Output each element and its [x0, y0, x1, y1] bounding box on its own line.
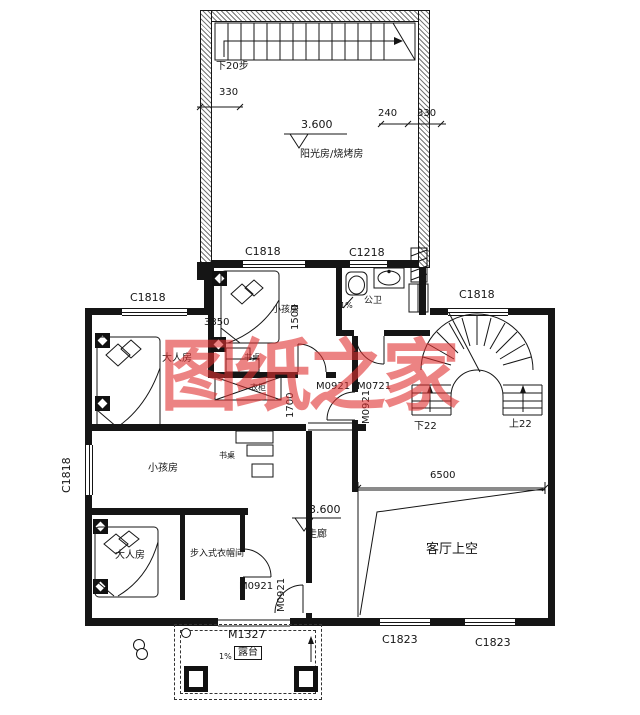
door-label-m1327: M1327	[228, 629, 266, 640]
door-label-m0921: M0921	[316, 382, 350, 392]
level-markers	[284, 134, 347, 531]
room-terrace: 露台	[234, 646, 262, 660]
window-label-c1218: C1218	[349, 247, 385, 258]
dim-3850: 3850	[204, 318, 229, 328]
window-label-c1818: C1818	[130, 292, 166, 303]
room-bath: 公卫	[364, 297, 382, 306]
dim-1500: 1500	[291, 305, 301, 330]
dim-1700: 1700	[286, 393, 296, 418]
toilet-icon	[346, 272, 367, 295]
plan-linework	[0, 0, 640, 715]
window-label-c1823: C1823	[382, 634, 418, 645]
roof-stair-note: 下20步	[216, 62, 249, 72]
stair-up22: 上22	[509, 420, 532, 430]
desk-lower	[236, 431, 273, 477]
wardrobe-label: 衣柜	[250, 384, 266, 392]
room-closet: 步入式衣帽间	[190, 550, 244, 559]
room-corridor: 走廊	[307, 530, 327, 540]
terrace-slope-arrow	[308, 636, 314, 662]
dim-6500: 6500	[430, 471, 455, 481]
stair-down22: 下22	[414, 422, 437, 432]
toilet-icon	[349, 276, 365, 294]
door-label-m0921: M0921	[239, 582, 273, 592]
room-master-lower: 大人房	[115, 551, 145, 561]
room-master-upper: 大人房	[162, 354, 192, 364]
room-kids-lower: 小孩房	[148, 464, 178, 474]
window-label-c1818: C1818	[459, 289, 495, 300]
dim-330: 330	[417, 109, 436, 119]
room-sunroom: 阳光房/烧烤房	[300, 150, 363, 160]
slope-bath: 1%	[340, 302, 353, 310]
bed-kids-upper	[221, 271, 279, 343]
bed-master-upper	[97, 337, 160, 428]
level-sunroom: 3.600	[301, 119, 333, 130]
window-label-c1818: C1818	[245, 246, 281, 257]
floor-plan: 下20步 330 240 330 3.600 阳光房/烧烤房 C1818 C12…	[0, 0, 640, 715]
desk-upper-label: 书桌	[244, 354, 260, 362]
dim-330: 330	[219, 88, 238, 98]
spiral-stair	[412, 313, 542, 415]
level-corridor: 3.600	[309, 504, 341, 515]
door-label-m0921: M0921	[277, 578, 287, 612]
slope-terrace: 1%	[219, 653, 232, 661]
window-label-c1823: C1823	[475, 637, 511, 648]
room-living-void: 客厅上空	[426, 543, 478, 556]
wardrobe-box	[215, 377, 281, 400]
door-label-m0921: M0921	[362, 390, 372, 424]
roof-stairs	[215, 23, 415, 60]
bed-master-lower	[95, 527, 158, 597]
desk-lower-label: 书桌	[219, 452, 235, 460]
window-label-c1818: C1818	[61, 457, 72, 493]
dim-240: 240	[378, 109, 397, 119]
